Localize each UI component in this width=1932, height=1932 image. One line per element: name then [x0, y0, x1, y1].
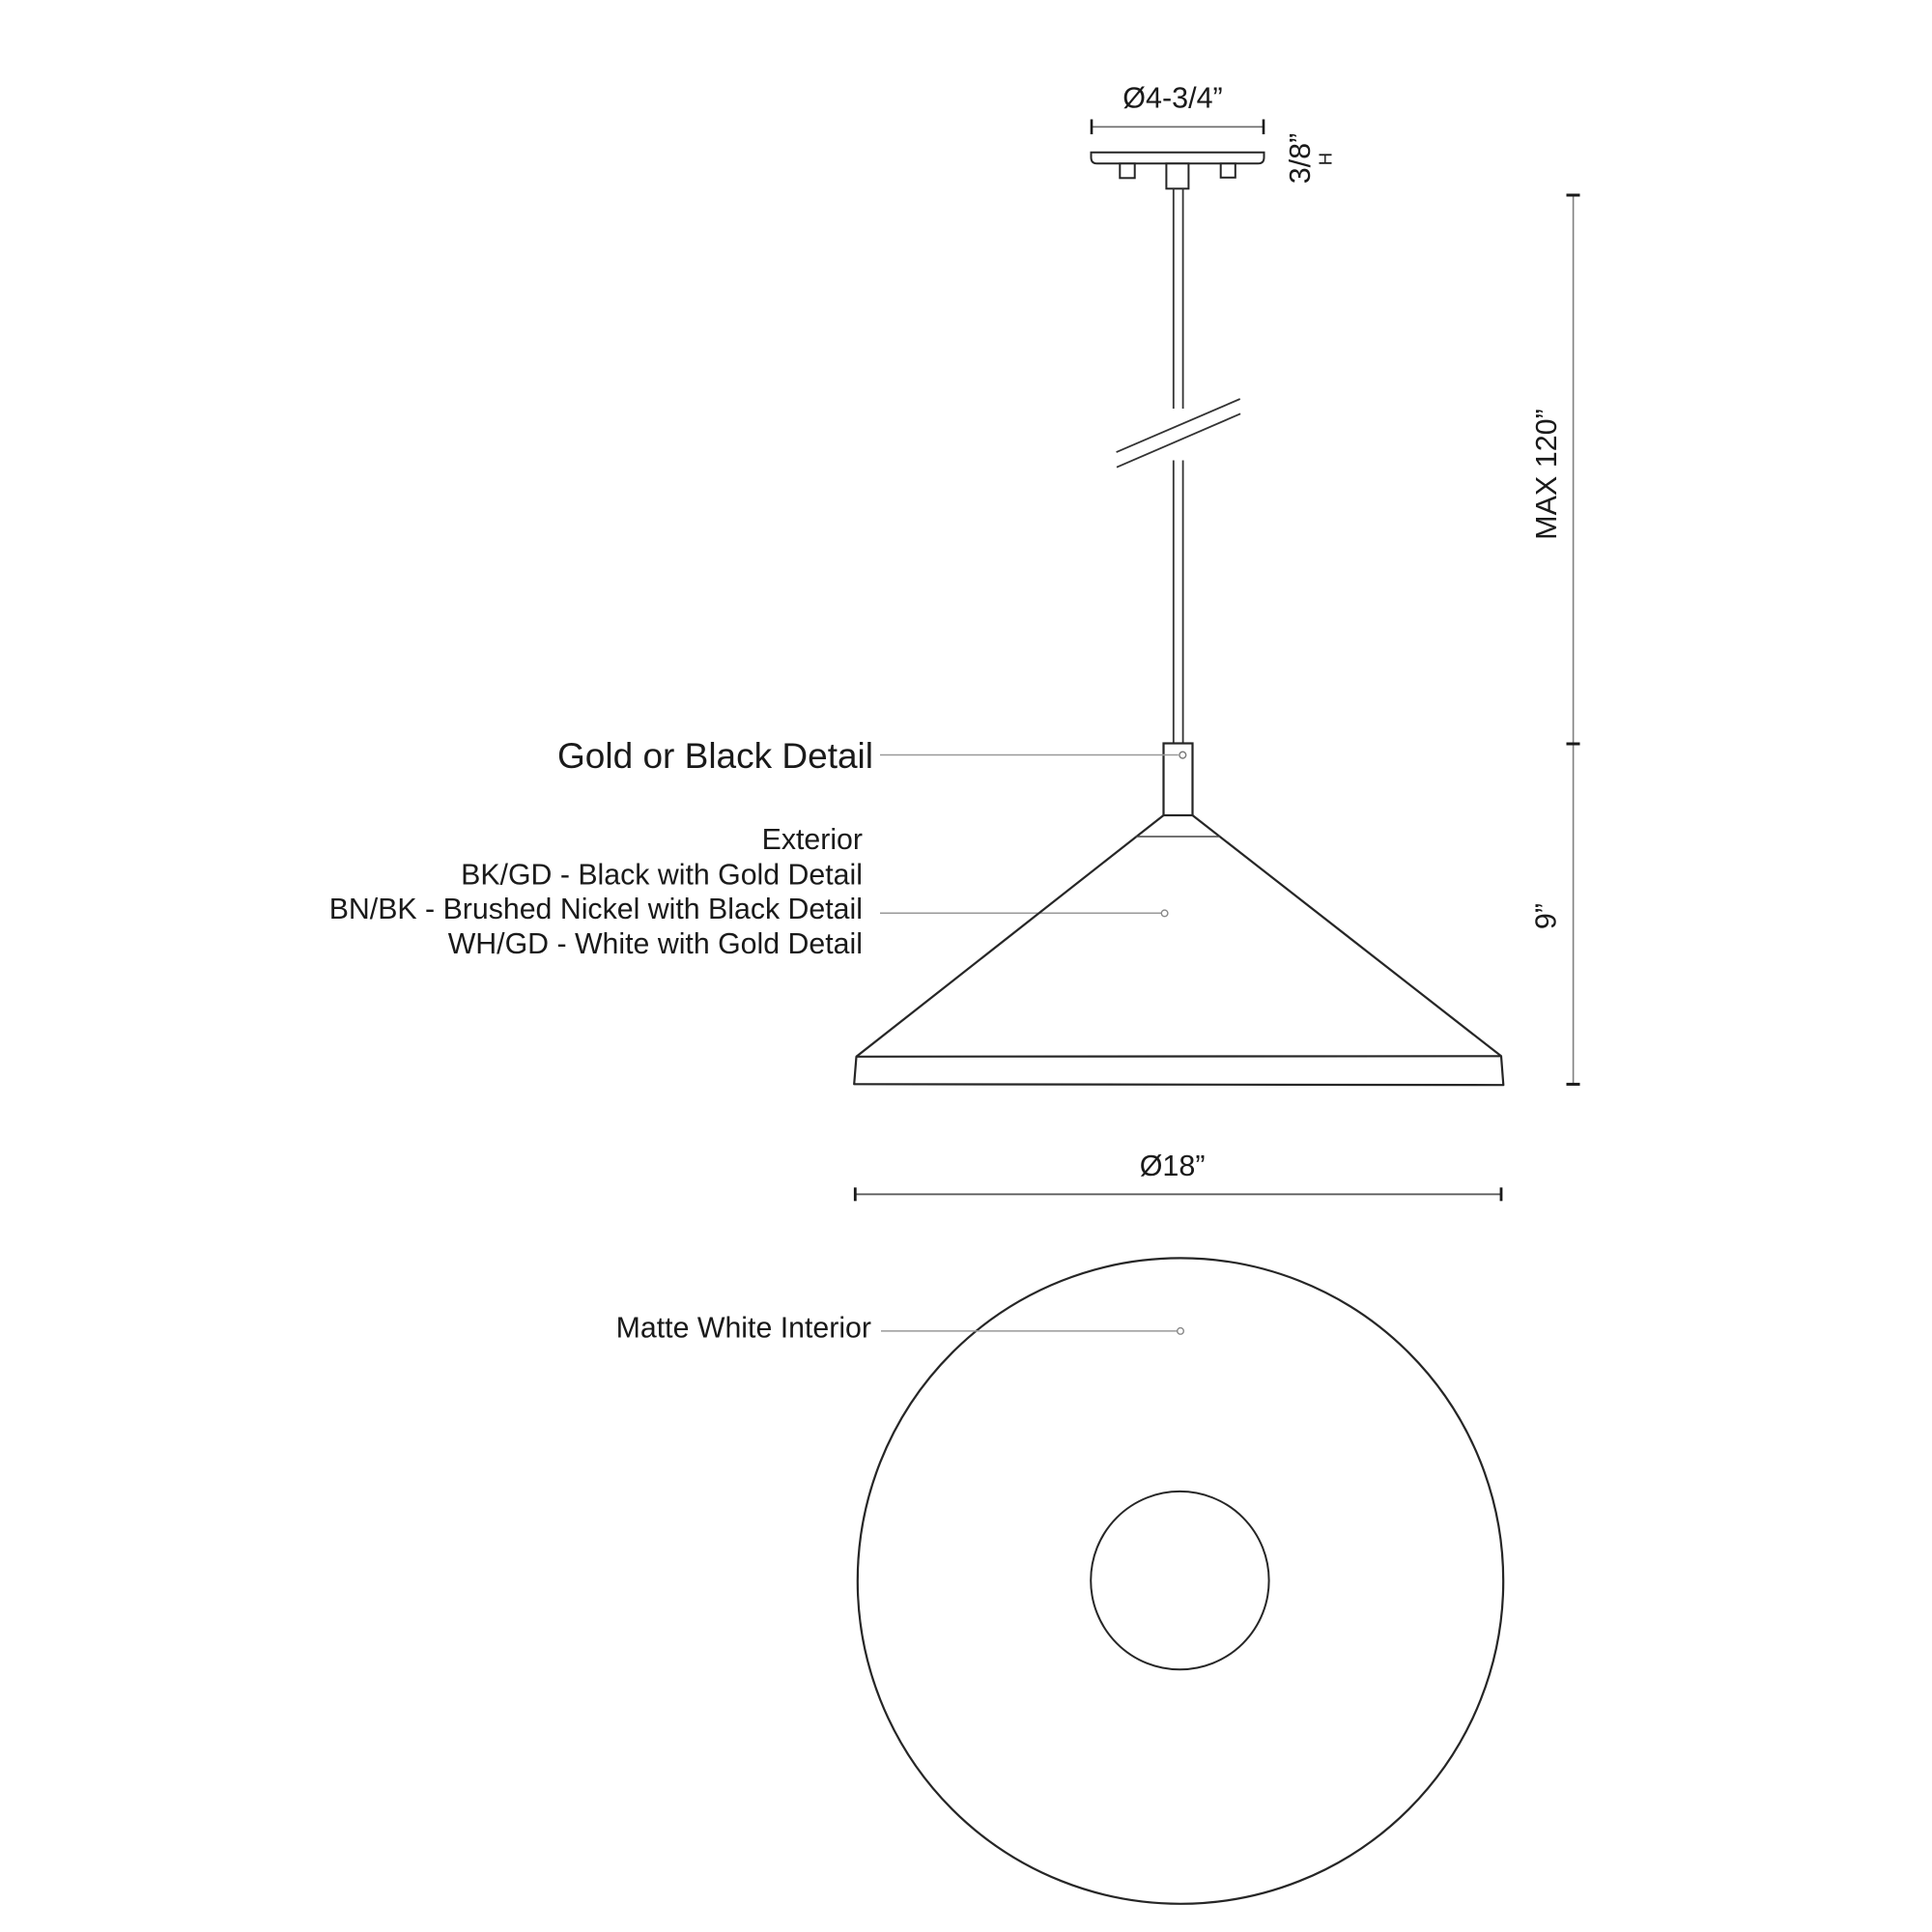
svg-text:3/8”: 3/8” [1284, 133, 1317, 185]
svg-text:Matte White Interior: Matte White Interior [616, 1313, 871, 1345]
svg-text:Exterior: Exterior [762, 824, 863, 856]
svg-text:H: H [1315, 153, 1335, 165]
svg-text:BN/BK - Brushed Nickel with Bl: BN/BK - Brushed Nickel with Black Detail [329, 894, 863, 925]
svg-text:BK/GD - Black with Gold Detail: BK/GD - Black with Gold Detail [461, 859, 863, 891]
svg-text:Ø18”: Ø18” [1140, 1150, 1206, 1182]
svg-text:Ø4-3/4”: Ø4-3/4” [1122, 82, 1222, 115]
svg-text:9”: 9” [1530, 903, 1563, 929]
svg-text:MAX 120”: MAX 120” [1530, 409, 1563, 540]
svg-text:WH/GD - White with Gold Detail: WH/GD - White with Gold Detail [448, 928, 863, 960]
svg-text:Gold or Black Detail: Gold or Black Detail [557, 736, 873, 776]
